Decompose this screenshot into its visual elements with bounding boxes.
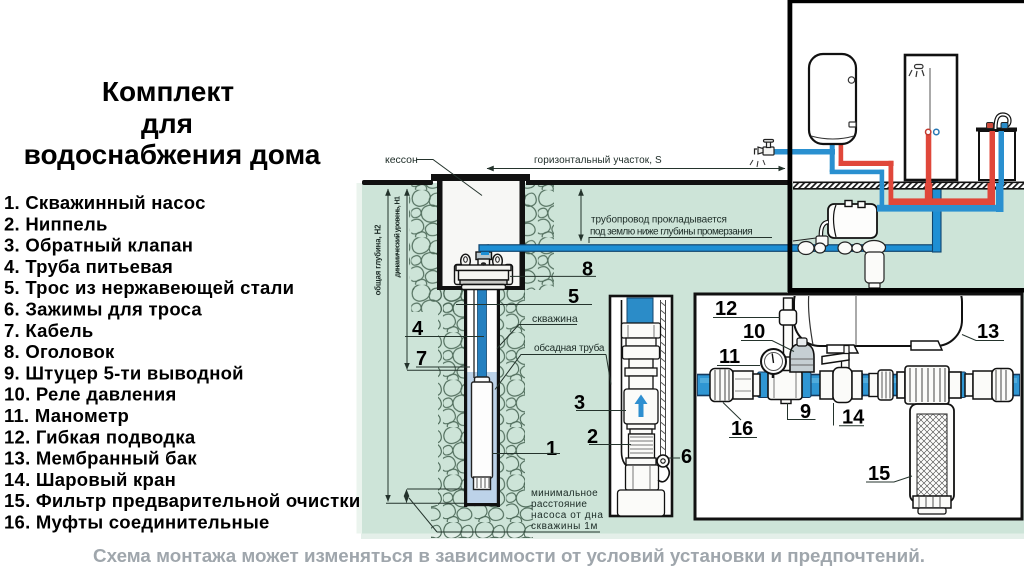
svg-text:8: 8 bbox=[582, 259, 593, 281]
svg-text:6: 6 bbox=[681, 446, 692, 468]
svg-text:10: 10 bbox=[743, 321, 765, 343]
svg-text:3. Обратный клапан: 3. Обратный клапан bbox=[4, 235, 193, 256]
svg-text:расстояние: расстояние bbox=[531, 499, 587, 510]
svg-text:Комплект: Комплект bbox=[102, 76, 234, 107]
svg-text:кессон: кессон bbox=[385, 154, 418, 166]
svg-text:9. Штуцер 5-ти выводной: 9. Штуцер 5-ти выводной bbox=[4, 362, 244, 383]
svg-text:под землю ниже глубины промерз: под землю ниже глубины промерзания bbox=[590, 226, 752, 238]
svg-text:12: 12 bbox=[715, 298, 737, 320]
svg-text:Схема монтажа может изменяться: Схема монтажа может изменяться в зависим… bbox=[93, 545, 925, 566]
svg-text:7. Кабель: 7. Кабель bbox=[4, 320, 93, 341]
svg-text:15. Фильтр предварительной очи: 15. Фильтр предварительной очистки bbox=[4, 490, 361, 511]
svg-text:14: 14 bbox=[842, 407, 865, 429]
svg-text:скважина: скважина bbox=[532, 313, 578, 325]
svg-text:16: 16 bbox=[731, 418, 753, 440]
svg-text:12. Гибкая подводка: 12. Гибкая подводка bbox=[4, 426, 196, 447]
svg-text:2. Ниппель: 2. Ниппель bbox=[4, 213, 108, 234]
svg-text:10. Реле давления: 10. Реле давления bbox=[4, 384, 177, 405]
svg-text:1. Скважинный насос: 1. Скважинный насос bbox=[4, 192, 206, 213]
svg-text:1: 1 bbox=[546, 438, 557, 460]
svg-text:обсадная труба: обсадная труба bbox=[534, 342, 605, 354]
svg-text:14. Шаровый кран: 14. Шаровый кран bbox=[4, 469, 176, 490]
svg-text:общая глубина, Н2: общая глубина, Н2 bbox=[374, 224, 383, 296]
svg-text:4. Труба питьевая: 4. Труба питьевая bbox=[4, 256, 173, 277]
svg-text:8. Оголовок: 8. Оголовок bbox=[4, 341, 115, 362]
svg-text:минимальное: минимальное bbox=[531, 488, 598, 499]
svg-text:для: для bbox=[141, 108, 193, 139]
svg-text:водоснабжения дома: водоснабжения дома bbox=[24, 139, 321, 170]
svg-text:динамический уровень, Н1: динамический уровень, Н1 bbox=[394, 196, 402, 277]
svg-text:горизонтальный участок, S: горизонтальный участок, S bbox=[534, 155, 662, 166]
svg-text:трубопровод прокладывается: трубопровод прокладывается bbox=[591, 214, 727, 226]
svg-text:5. Трос из нержавеющей стали: 5. Трос из нержавеющей стали bbox=[4, 277, 294, 298]
svg-text:скважины 1м: скважины 1м bbox=[531, 521, 598, 532]
svg-text:насоса от дна: насоса от дна bbox=[531, 510, 604, 521]
svg-text:16. Муфты соединительные: 16. Муфты соединительные bbox=[4, 512, 270, 533]
svg-text:13. Мембранный бак: 13. Мембранный бак bbox=[4, 448, 197, 469]
svg-text:11. Манометр: 11. Манометр bbox=[4, 405, 129, 426]
svg-text:11: 11 bbox=[719, 346, 740, 368]
svg-text:13: 13 bbox=[977, 321, 999, 343]
svg-text:6. Зажимы для троса: 6. Зажимы для троса bbox=[4, 299, 202, 320]
